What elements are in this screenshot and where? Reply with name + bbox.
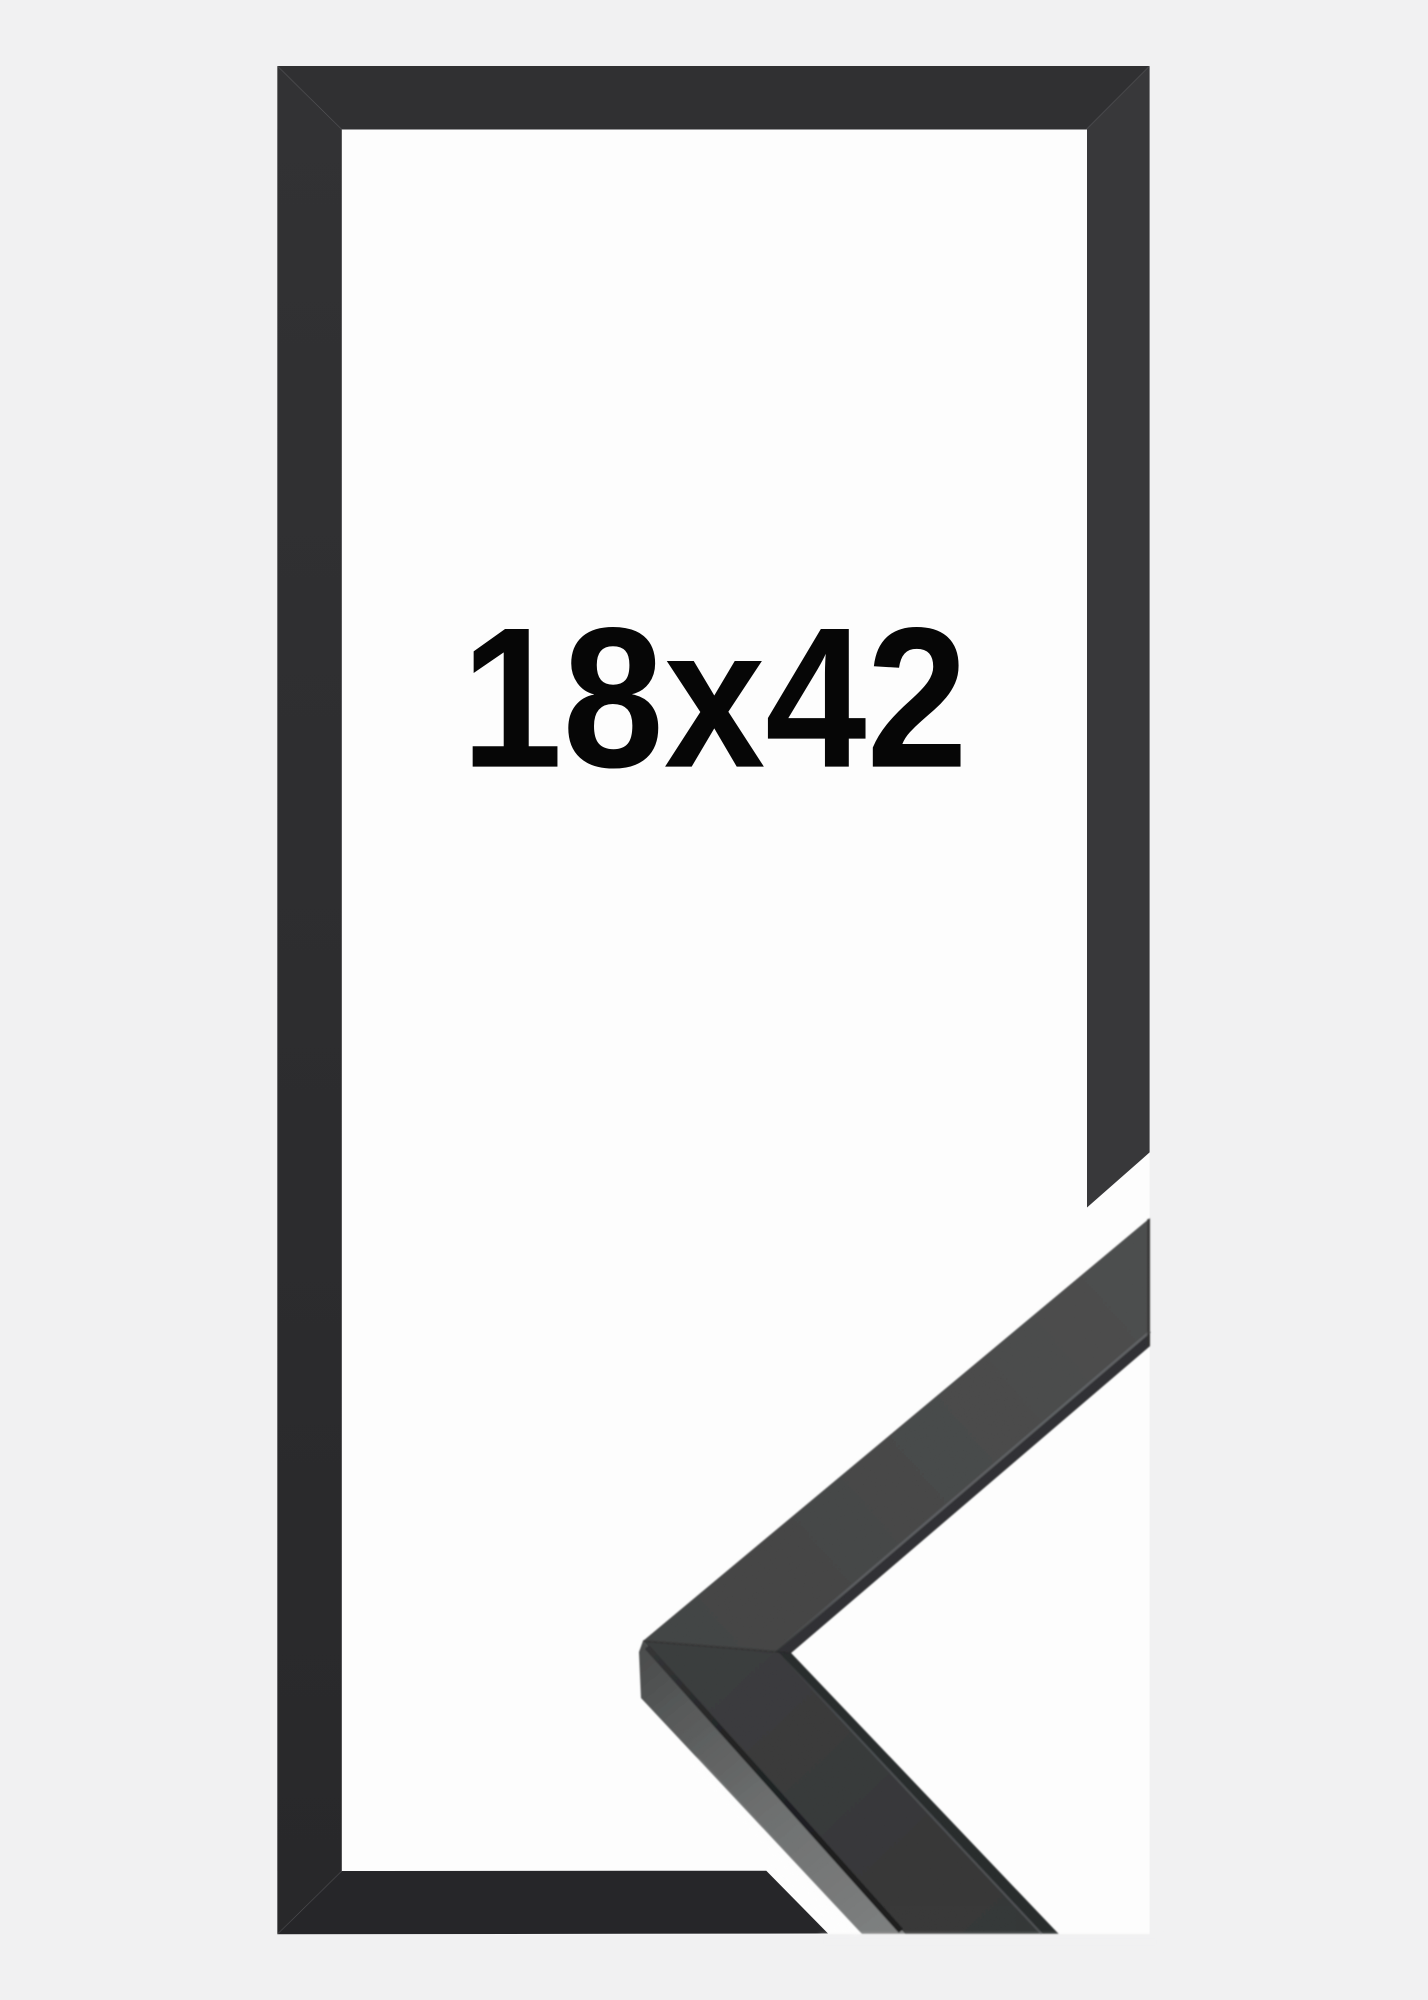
svg-text:18x42: 18x42 [461,586,968,810]
